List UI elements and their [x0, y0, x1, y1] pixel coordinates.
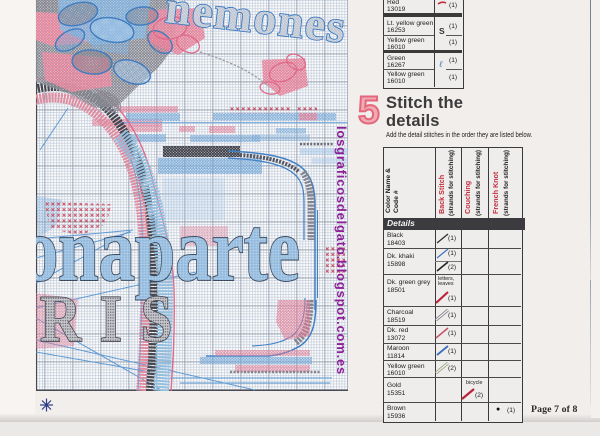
svg-text:RIS: RIS	[40, 283, 191, 356]
